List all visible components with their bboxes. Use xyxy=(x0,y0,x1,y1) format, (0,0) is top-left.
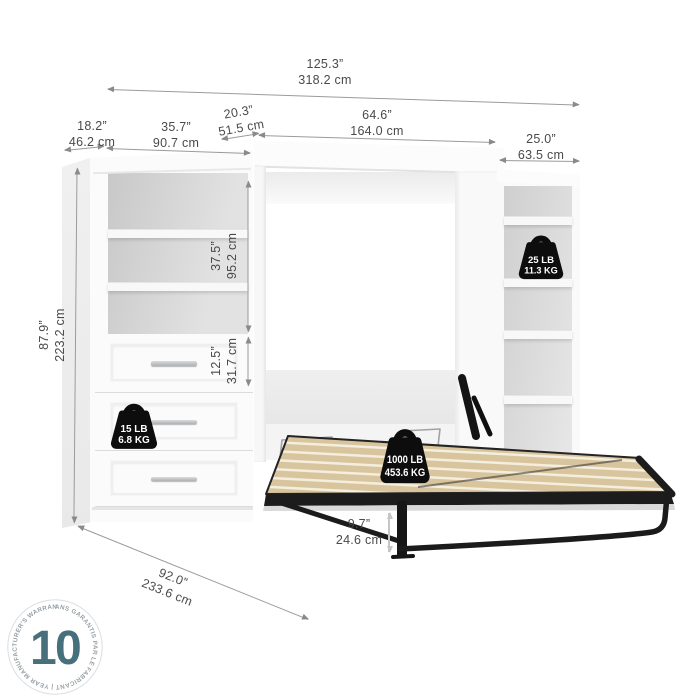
murphy-bed-dimension-diagram: 125.3” 318.2 cm 18.2” 46.2 cm 35.7” 90.7… xyxy=(0,0,700,700)
drawer-weight-lb: 15 LB xyxy=(120,424,147,435)
dim-label-shelf-height: 37.5” 95.2 cm xyxy=(207,201,241,311)
dim-label-open-depth: 92.0” 233.6 cm xyxy=(108,548,231,623)
dim-label-left-depth: 18.2” 46.2 cm xyxy=(52,118,132,151)
dim-label-overall-width: 125.3” 318.2 cm xyxy=(265,56,385,89)
shelf-weight-lb: 25 LB xyxy=(528,255,554,266)
dim-in: 125.3” xyxy=(307,56,344,72)
dim-cm: 46.2 cm xyxy=(69,134,115,150)
dim-in: 87.9” xyxy=(36,320,52,350)
dim-in: 64.6” xyxy=(362,107,392,123)
dim-in: 35.7” xyxy=(161,119,191,135)
dim-label-bed-width: 64.6” 164.0 cm xyxy=(327,107,427,140)
bed-frame-front-band xyxy=(264,492,674,506)
right-bookcase-shelf-1 xyxy=(504,216,572,225)
dim-in: 12.5” xyxy=(208,346,224,376)
drawer-handle xyxy=(151,361,197,366)
dim-in: 18.2” xyxy=(77,118,107,134)
dim-label-right-width: 25.0” 63.5 cm xyxy=(501,131,581,164)
dim-cm: 95.2 cm xyxy=(224,233,240,279)
dim-label-overall-height: 87.9” 223.2 cm xyxy=(34,290,70,380)
left-cabinet-kick xyxy=(92,507,253,510)
dim-in: 37.5” xyxy=(208,241,224,271)
left-cabinet-drawer-3 xyxy=(95,452,253,506)
drawer-handle xyxy=(151,477,197,482)
dim-cm: 31.7 cm xyxy=(224,338,240,384)
dim-line-drawer-height xyxy=(248,338,249,386)
bed-weight-icon: 1000 LB 453.6 KG xyxy=(376,421,434,488)
bed-piston-bar xyxy=(462,378,476,436)
dim-in: 25.0” xyxy=(526,131,556,147)
bed-slat-deck xyxy=(266,436,670,494)
dim-cm: 318.2 cm xyxy=(298,72,351,88)
dim-cm: 63.5 cm xyxy=(518,147,564,163)
dim-cm: 90.7 cm xyxy=(153,135,199,151)
bed-leg-foot xyxy=(393,556,413,557)
dim-line-shelf-height xyxy=(248,182,249,332)
shelf-weight-icon: 25 LB 11.3 KG xyxy=(514,229,568,283)
dim-cm: 223.2 cm xyxy=(52,308,68,361)
dim-cm: 164.0 cm xyxy=(350,123,403,139)
dim-label-left-width: 35.7” 90.7 cm xyxy=(136,119,216,152)
drawer-weight-icon: 15 LB 6.8 KG xyxy=(106,397,162,453)
dim-cm: 24.6 cm xyxy=(336,532,382,548)
dim-line-overall-width xyxy=(108,89,579,106)
bed-cabinet-inner-top-shade xyxy=(266,172,455,204)
dim-in: 9.7” xyxy=(348,516,371,532)
shelf-weight-kg: 11.3 KG xyxy=(524,265,557,275)
right-bookcase-shelf-3 xyxy=(504,330,572,339)
warranty-years: 10 xyxy=(30,621,80,675)
dim-label-drawer-height: 12.5” 31.7 cm xyxy=(207,306,241,416)
dim-label-leg-height: 9.7” 24.6 cm xyxy=(309,516,409,549)
bed-weight-kg: 453.6 KG xyxy=(385,468,426,480)
drawer-weight-kg: 6.8 KG xyxy=(118,435,150,446)
warranty-badge: ANS GARANTIS PAR LE FABRICANT | YEAR MAN… xyxy=(6,598,104,696)
bed-weight-lb: 1000 LB xyxy=(387,455,423,467)
